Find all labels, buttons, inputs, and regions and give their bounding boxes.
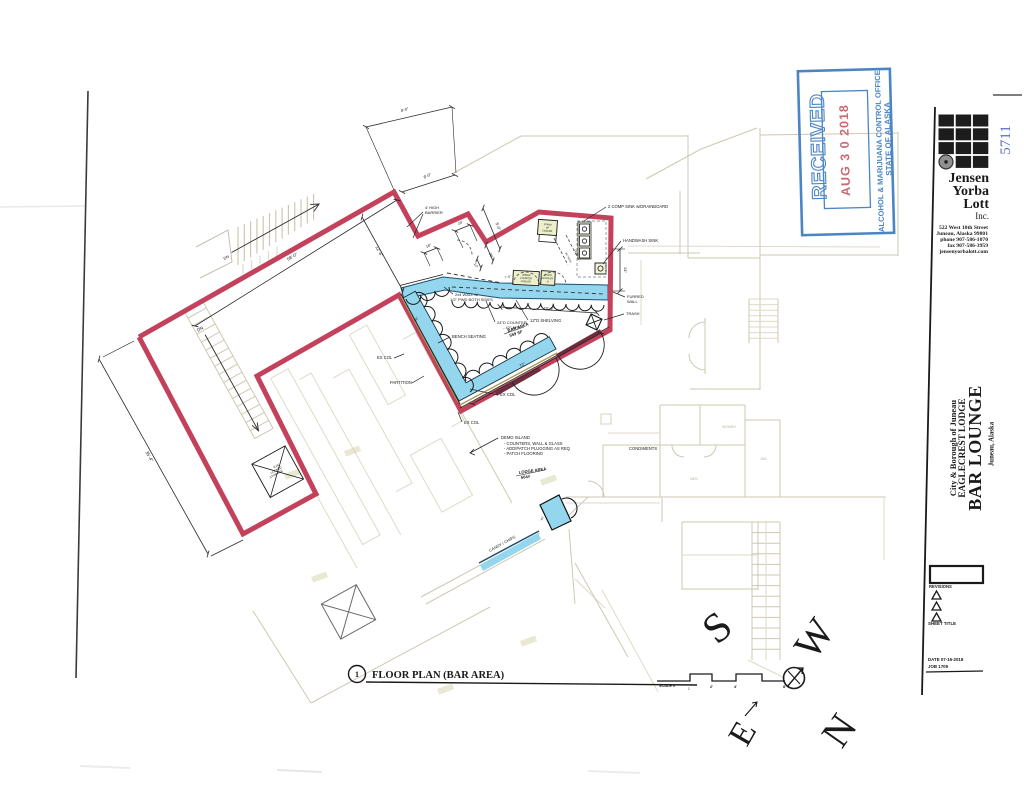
svg-text:AUG 3 0 2018: AUG 3 0 2018 — [837, 104, 853, 196]
svg-text:JOB 1709: JOB 1709 — [928, 664, 949, 669]
svg-text:1/2" PWD BOTH SIDES: 1/2" PWD BOTH SIDES — [450, 297, 493, 302]
svg-text:4': 4' — [734, 685, 737, 689]
svg-text:SCALE 0: SCALE 0 — [659, 684, 675, 688]
svg-text:WALL: WALL — [627, 299, 639, 304]
svg-text:2 COMP SINK w/DRAINBOARD: 2 COMP SINK w/DRAINBOARD — [608, 204, 668, 209]
svg-text:12"D SHELVING: 12"D SHELVING — [530, 318, 561, 323]
svg-text:24": 24" — [623, 267, 628, 273]
svg-text:Juneau, Alaska: Juneau, Alaska — [989, 421, 996, 466]
svg-text:EX COL: EX COL — [464, 420, 480, 425]
svg-text:1: 1 — [688, 687, 690, 691]
svg-text:DEMO ISLAND: DEMO ISLAND — [501, 435, 530, 440]
svg-text:FLOOR PLAN (BAR AREA): FLOOR PLAN (BAR AREA) — [372, 670, 505, 681]
svg-text:PARTITION: PARTITION — [390, 380, 412, 385]
svg-text:City & Borough of Juneau: City & Borough of Juneau — [948, 400, 958, 496]
svg-text:EX COL: EX COL — [377, 355, 393, 360]
svg-text:5711: 5711 — [998, 125, 1014, 154]
svg-text:MEN: MEN — [690, 477, 698, 481]
svg-text:15'-2": 15'-2" — [544, 306, 555, 312]
svg-text:COOLER: COOLER — [521, 280, 532, 284]
svg-text:BAR LOUNGE: BAR LOUNGE — [965, 385, 985, 511]
svg-text:REVISIONS: REVISIONS — [929, 584, 952, 589]
svg-text:Inc.: Inc. — [975, 211, 989, 221]
svg-text:HANDWASH SINK: HANDWASH SINK — [623, 238, 658, 243]
svg-text:2': 2' — [710, 685, 713, 689]
svg-text:WOMEN: WOMEN — [722, 425, 736, 429]
svg-text:SHEET TITLE: SHEET TITLE — [928, 621, 956, 626]
svg-text:EX COL: EX COL — [500, 392, 516, 397]
svg-text:1: 1 — [355, 670, 359, 679]
svg-text:DATE 07-16-2018: DATE 07-16-2018 — [928, 657, 964, 662]
svg-text:Lott: Lott — [963, 197, 989, 212]
svg-text:- PATCH FLOORING: - PATCH FLOORING — [504, 451, 543, 456]
svg-text:jensenyorbalott.com: jensenyorbalott.com — [938, 249, 988, 255]
svg-text:BARRIER: BARRIER — [425, 210, 443, 215]
svg-text:RECEIVED: RECEIVED — [806, 93, 831, 200]
svg-text:BENCH SEATING: BENCH SEATING — [452, 334, 486, 339]
svg-text:JAN: JAN — [760, 457, 767, 461]
svg-text:CONDIMENTS: CONDIMENTS — [629, 446, 657, 451]
svg-text:TRASH: TRASH — [626, 311, 640, 316]
